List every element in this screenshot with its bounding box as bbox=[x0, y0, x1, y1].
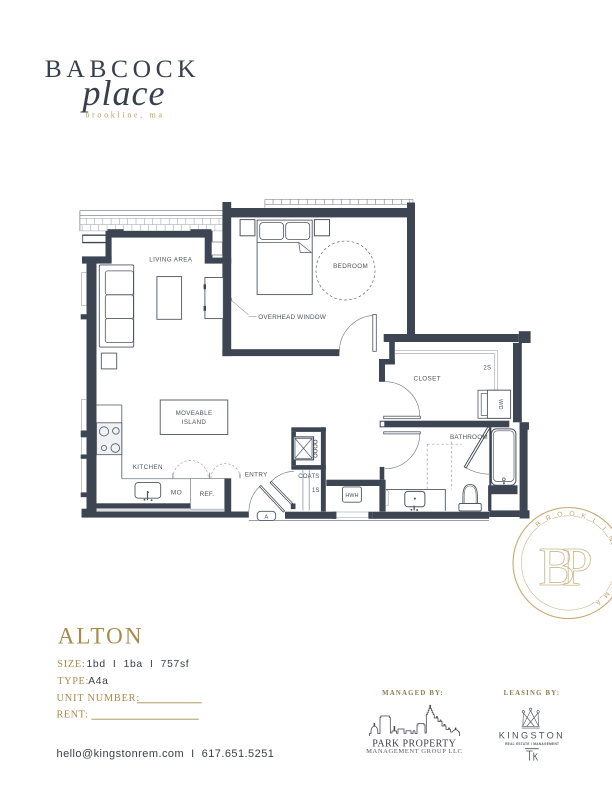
svg-text:place: place bbox=[80, 73, 166, 113]
svg-text:W/D: W/D bbox=[497, 399, 503, 410]
svg-text:REAL ESTATE / MANAGEMENT: REAL ESTATE / MANAGEMENT bbox=[505, 742, 559, 746]
svg-text:HWH: HWH bbox=[345, 493, 358, 499]
svg-text:CLOSET: CLOSET bbox=[414, 375, 441, 382]
svg-text:MO: MO bbox=[171, 490, 182, 497]
svg-text:MOVEABLE: MOVEABLE bbox=[176, 410, 213, 417]
svg-text:MANAGEMENT GROUP LLC: MANAGEMENT GROUP LLC bbox=[366, 748, 462, 755]
svg-text:REF.: REF. bbox=[200, 491, 215, 498]
svg-text:SIZE:: SIZE: bbox=[57, 659, 85, 670]
svg-text:K: K bbox=[580, 513, 587, 521]
svg-text:2S: 2S bbox=[483, 366, 491, 372]
svg-text:BATHROOM: BATHROOM bbox=[450, 434, 488, 441]
svg-text:ALTON: ALTON bbox=[58, 624, 144, 649]
svg-text:LEASING BY:: LEASING BY: bbox=[504, 690, 561, 697]
svg-text:A4a: A4a bbox=[88, 676, 108, 687]
svg-text:M: M bbox=[601, 590, 610, 599]
svg-text:RENT:: RENT: bbox=[57, 710, 89, 721]
svg-text:KITCHEN: KITCHEN bbox=[133, 464, 163, 471]
svg-text:KINGSTON: KINGSTON bbox=[499, 731, 565, 741]
svg-text:MANAGED BY:: MANAGED BY: bbox=[382, 690, 444, 697]
svg-text:BEDROOM: BEDROOM bbox=[333, 263, 368, 270]
svg-text:1S: 1S bbox=[312, 488, 320, 494]
svg-text:brookline, ma: brookline, ma bbox=[85, 111, 164, 120]
svg-text:ENTRY: ENTRY bbox=[245, 471, 268, 478]
svg-text:O: O bbox=[569, 511, 575, 518]
svg-text:COATS: COATS bbox=[298, 474, 319, 480]
svg-text:O: O bbox=[557, 511, 564, 519]
svg-text:UNIT NUMBER:: UNIT NUMBER: bbox=[57, 693, 141, 704]
svg-text:L: L bbox=[591, 518, 598, 526]
svg-text:OVERHEAD WINDOW: OVERHEAD WINDOW bbox=[258, 314, 326, 321]
svg-text:ISLAND: ISLAND bbox=[182, 419, 207, 426]
svg-text:TYPE:: TYPE: bbox=[57, 676, 89, 687]
svg-text:1bd I 1ba I 757sf: 1bd I 1ba I 757sf bbox=[87, 659, 190, 670]
svg-text:LIVING AREA: LIVING AREA bbox=[149, 256, 192, 263]
svg-text:P: P bbox=[562, 536, 593, 597]
svg-text:hello@kingstonrem.com I 617.: hello@kingstonrem.com I 617.651.5251 bbox=[57, 748, 275, 760]
svg-text:A: A bbox=[265, 514, 269, 520]
